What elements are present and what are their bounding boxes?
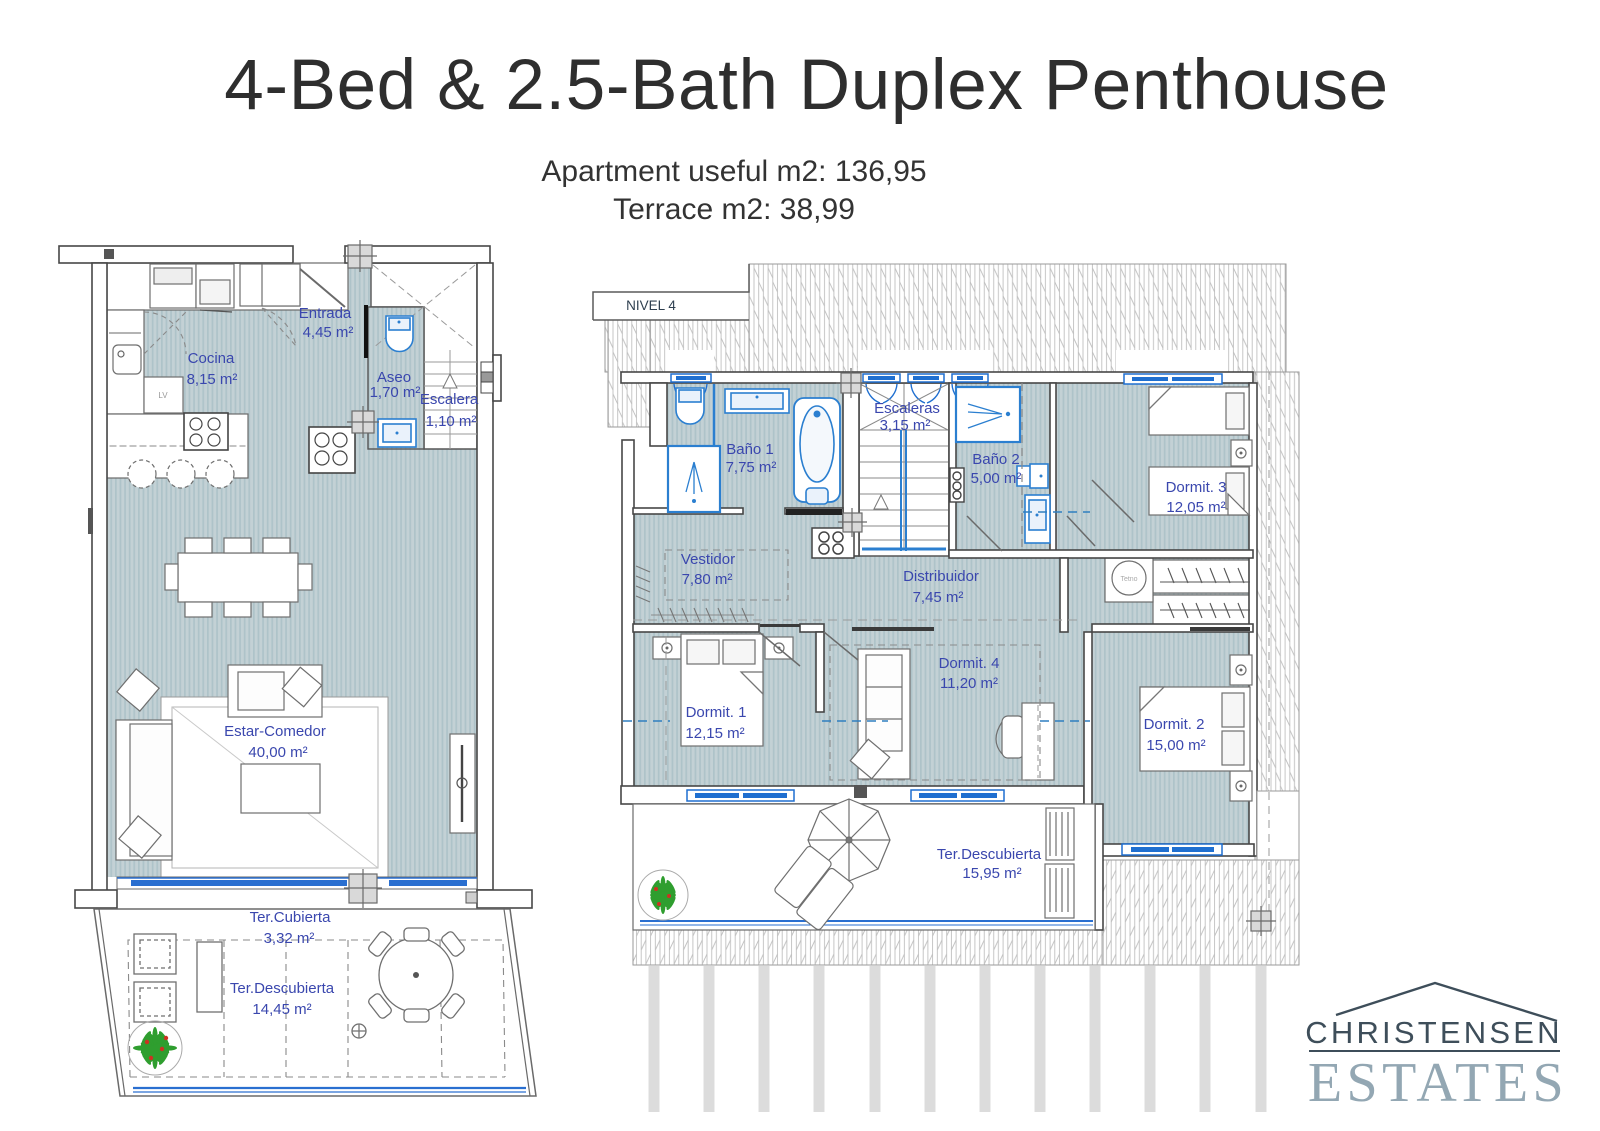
svg-text:Dormit. 2: Dormit. 2: [1144, 716, 1205, 733]
svg-text:3,15 m²: 3,15 m²: [880, 417, 931, 434]
svg-text:12,05 m²: 12,05 m²: [1166, 499, 1225, 516]
svg-text:40,00 m²: 40,00 m²: [248, 744, 307, 761]
svg-text:1,10 m²: 1,10 m²: [426, 413, 477, 430]
svg-text:12,15 m²: 12,15 m²: [685, 725, 744, 742]
svg-text:Cocina: Cocina: [188, 350, 235, 367]
svg-text:Distribuidor: Distribuidor: [903, 568, 979, 585]
svg-text:Ter.Cubierta: Ter.Cubierta: [250, 909, 332, 926]
svg-text:Dormit. 4: Dormit. 4: [939, 655, 1000, 672]
svg-text:Entrada: Entrada: [299, 305, 352, 322]
svg-text:Ter.Descubierta: Ter.Descubierta: [230, 980, 335, 997]
svg-text:Dormit. 1: Dormit. 1: [686, 704, 747, 721]
svg-text:Vestidor: Vestidor: [681, 551, 735, 568]
svg-text:CHRISTENSEN: CHRISTENSEN: [1305, 1015, 1562, 1050]
svg-text:7,75 m²: 7,75 m²: [726, 459, 777, 476]
svg-text:Baño 1: Baño 1: [726, 441, 774, 458]
svg-text:8,15 m²: 8,15 m²: [187, 371, 238, 388]
svg-text:ESTATES: ESTATES: [1308, 1052, 1568, 1114]
svg-text:Ter.Descubierta: Ter.Descubierta: [937, 846, 1042, 863]
svg-text:3,32 m²: 3,32 m²: [264, 930, 315, 947]
svg-text:14,45 m²: 14,45 m²: [252, 1001, 311, 1018]
svg-text:4,45 m²: 4,45 m²: [303, 324, 354, 341]
svg-text:Escalera: Escalera: [420, 391, 479, 408]
svg-text:Tetno: Tetno: [1120, 576, 1137, 583]
svg-text:Baño 2: Baño 2: [972, 451, 1020, 468]
svg-text:7,45 m²: 7,45 m²: [913, 589, 964, 606]
svg-text:NIVEL 4: NIVEL 4: [626, 298, 676, 313]
svg-text:1,70 m²: 1,70 m²: [370, 384, 421, 401]
svg-text:11,20 m²: 11,20 m²: [940, 675, 998, 692]
svg-text:Dormit. 3: Dormit. 3: [1166, 479, 1227, 496]
svg-text:15,95 m²: 15,95 m²: [962, 865, 1021, 882]
svg-text:LV: LV: [158, 391, 168, 400]
svg-text:Estar-Comedor: Estar-Comedor: [224, 723, 326, 740]
svg-text:Escaleras: Escaleras: [874, 400, 940, 417]
svg-text:7,80 m²: 7,80 m²: [682, 571, 733, 588]
svg-text:5,00 m²: 5,00 m²: [971, 470, 1022, 487]
svg-text:15,00 m²: 15,00 m²: [1146, 737, 1205, 754]
